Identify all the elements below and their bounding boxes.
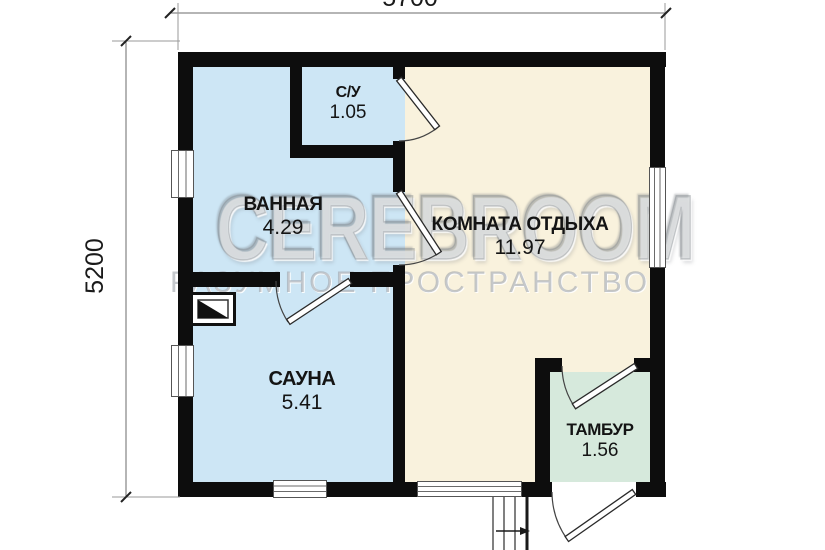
wall-sauna-north-right	[350, 272, 405, 287]
room-area: 4.29	[208, 216, 358, 240]
room-area: 5.41	[240, 391, 364, 415]
wall-sauna-north-left	[193, 272, 280, 287]
room-label-wc: С/У 1.05	[302, 84, 394, 124]
wall-partition-top-stub	[393, 67, 405, 79]
room-area: 1.56	[552, 440, 648, 462]
room-label-bathroom: ВАННАЯ 4.29	[208, 194, 358, 240]
wall-bottom-right-segment	[636, 482, 666, 497]
window-left-upper	[171, 150, 194, 198]
wall-tambour-north-left	[550, 358, 562, 372]
wall-tambour-north-right	[634, 358, 650, 372]
dimension-label-width: 5700	[360, 0, 460, 11]
room-area: 11.97	[425, 236, 615, 260]
room-name: С/У	[302, 84, 394, 102]
door-entrance	[552, 490, 636, 542]
room-name: КОМНАТА ОТДЫХА	[425, 214, 615, 236]
wall-partition-mid	[393, 141, 405, 192]
window-right	[649, 167, 666, 268]
room-name: САУНА	[240, 368, 364, 391]
wall-left	[178, 52, 193, 497]
room-name: ТАМБУР	[552, 420, 648, 440]
room-label-rest-room: КОМНАТА ОТДЫХА 11.97	[425, 214, 615, 260]
window-left-lower	[171, 345, 194, 397]
wall-top	[178, 52, 666, 67]
floor-plan: CEREBROOM РАЗУМНОЕ ПРОСТРАНСТВО	[0, 0, 825, 550]
dimension-label-height: 5200	[83, 226, 107, 306]
room-name: ВАННАЯ	[208, 194, 358, 216]
room-area: 1.05	[302, 102, 394, 124]
wall-right	[650, 52, 665, 497]
window-bottom-sauna	[273, 480, 327, 498]
stairs-icon	[493, 497, 530, 550]
room-label-sauna: САУНА 5.41	[240, 368, 364, 415]
window-bottom-rest-room	[417, 481, 522, 497]
wall-su-south	[290, 145, 405, 158]
wall-tambour-west	[535, 358, 550, 482]
wall-partition-bottom	[393, 265, 405, 482]
room-label-tambour: ТАМБУР 1.56	[552, 420, 648, 461]
